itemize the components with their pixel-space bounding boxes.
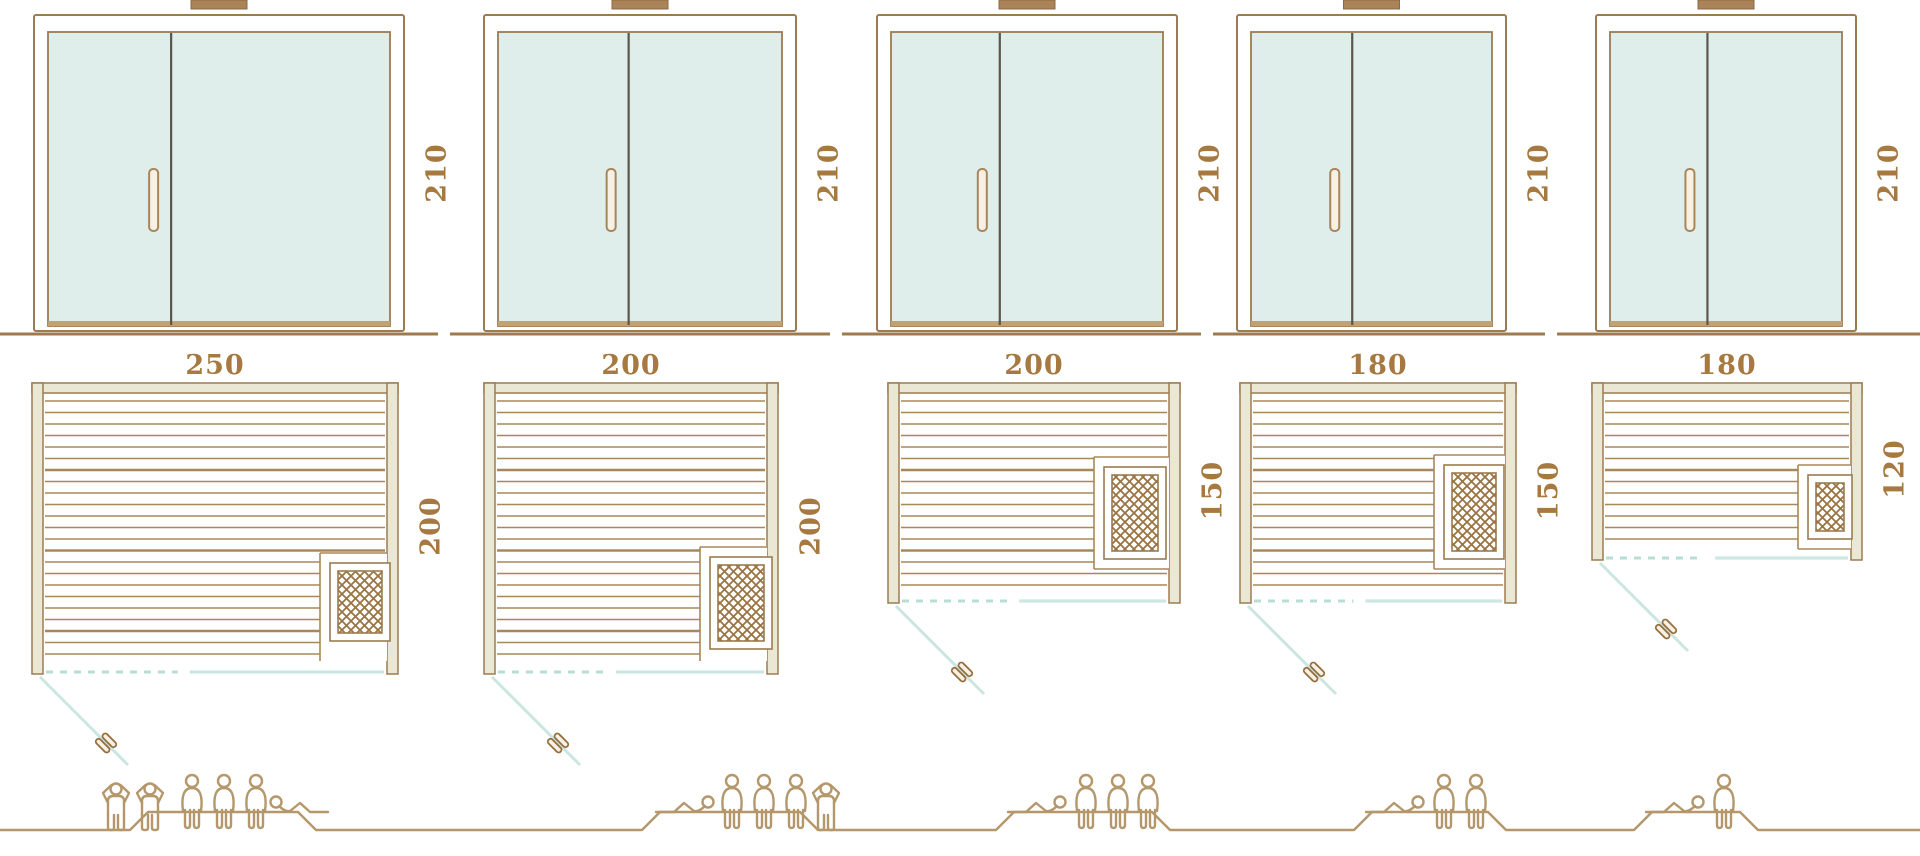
door-elevation: 210 <box>842 0 1226 334</box>
capacity-group <box>1366 775 1486 828</box>
person-lying-glyph <box>271 797 329 813</box>
plan-top-wall <box>484 383 778 393</box>
person-sitting-glyph <box>1434 775 1453 828</box>
person-lying-glyph <box>1366 797 1424 813</box>
person-lying-icon <box>1646 797 1704 813</box>
person-sitting-icon <box>1714 775 1733 828</box>
roof-vent <box>999 0 1055 9</box>
plan-side-wall-left <box>32 383 43 674</box>
plan-side-wall-left <box>484 383 495 674</box>
door-height-label: 210 <box>1524 143 1555 202</box>
door-handle <box>607 169 616 231</box>
person-sitting-icon <box>1466 775 1485 828</box>
door-handle <box>1685 169 1694 231</box>
person-lying-glyph <box>1646 797 1704 813</box>
door-height-label: 210 <box>422 143 453 202</box>
floor-plan: 180150 <box>1240 350 1565 694</box>
heater-crosshatch-icon <box>338 571 382 633</box>
door-height-label: 210 <box>814 143 845 202</box>
plan-width-label: 180 <box>1697 350 1756 381</box>
floor-plan: 180120 <box>1592 350 1911 651</box>
heater <box>1094 457 1169 569</box>
door-elevation: 210 <box>450 0 845 334</box>
plan-top-wall <box>32 383 398 393</box>
plan-side-wall-left <box>888 383 899 603</box>
person-sitting-icon <box>1076 775 1095 828</box>
person-sitting-icon <box>1434 775 1453 828</box>
person-standing-icon <box>137 784 163 831</box>
door-swing-line <box>1248 606 1336 694</box>
door-glass <box>48 32 390 326</box>
floor-plan: 200150 <box>888 350 1229 694</box>
person-sitting-glyph <box>1076 775 1095 828</box>
person-lying-icon <box>271 797 329 813</box>
heater-crosshatch-icon <box>1452 473 1496 551</box>
door-glass <box>1251 32 1492 326</box>
heater <box>320 553 390 661</box>
person-lying-icon <box>1008 797 1066 813</box>
door-elevation: 210 <box>0 0 453 334</box>
heater-crosshatch-icon <box>718 565 764 641</box>
plan-depth-label: 200 <box>416 496 447 555</box>
door-swing-line <box>492 677 580 765</box>
sauna-column: 210180150 <box>1213 0 1565 694</box>
capacity-group <box>656 775 839 830</box>
diagram-canvas: 2102502002102002002102001502101801502101… <box>0 0 1920 856</box>
door-elevation: 210 <box>1557 0 1920 334</box>
door-glass <box>498 32 782 326</box>
person-lying-glyph <box>1008 797 1066 813</box>
door-height-label: 210 <box>1195 143 1226 202</box>
floor-plan: 250200 <box>32 350 447 765</box>
person-sitting-glyph <box>786 775 805 828</box>
plan-side-wall-left <box>1240 383 1251 603</box>
heater-crosshatch-icon <box>1816 483 1844 531</box>
person-sitting-glyph <box>754 775 773 828</box>
door-handle <box>1330 169 1339 231</box>
sauna-column: 210180120 <box>1557 0 1920 651</box>
plan-side-wall-right <box>1505 383 1516 603</box>
plan-width-label: 200 <box>1004 350 1063 381</box>
door-glass <box>891 32 1163 326</box>
person-sitting-glyph <box>722 775 741 828</box>
person-sitting-icon <box>754 775 773 828</box>
person-sitting-glyph <box>182 775 201 828</box>
heater <box>1434 455 1505 569</box>
ground-profile-line <box>0 812 1920 830</box>
capacity-group <box>1646 775 1734 828</box>
person-standing-glyph <box>137 784 163 831</box>
plan-side-wall-right <box>1169 383 1180 603</box>
heater <box>700 547 772 661</box>
plan-depth-label: 200 <box>796 496 827 555</box>
person-sitting-icon <box>1138 775 1157 828</box>
door-handle <box>149 169 158 231</box>
plan-width-label: 180 <box>1348 350 1407 381</box>
plan-depth-label: 120 <box>1880 439 1911 498</box>
plan-top-wall <box>1240 383 1516 393</box>
door-threshold <box>1610 321 1842 326</box>
sauna-column: 210250200 <box>0 0 453 765</box>
person-standing-glyph <box>813 784 839 831</box>
door-threshold <box>891 321 1163 326</box>
person-sitting-icon <box>722 775 741 828</box>
heater <box>1798 465 1852 549</box>
roof-vent <box>1344 0 1400 9</box>
person-sitting-icon <box>1108 775 1127 828</box>
sauna-column: 210200150 <box>842 0 1229 694</box>
person-sitting-glyph <box>1714 775 1733 828</box>
person-standing-glyph <box>103 784 129 831</box>
plan-depth-label: 150 <box>1534 461 1565 520</box>
plan-width-label: 250 <box>185 350 244 381</box>
door-height-label: 210 <box>1874 143 1905 202</box>
person-sitting-glyph <box>246 775 265 828</box>
plan-width-label: 200 <box>601 350 660 381</box>
door-threshold <box>1251 321 1492 326</box>
plan-top-wall <box>888 383 1180 393</box>
door-swing-line <box>1600 563 1688 651</box>
person-lying-glyph <box>656 797 714 813</box>
person-lying-icon <box>1366 797 1424 813</box>
person-sitting-glyph <box>1138 775 1157 828</box>
floor-plan: 200200 <box>484 350 827 765</box>
person-standing-icon <box>813 784 839 831</box>
roof-vent <box>191 0 247 9</box>
person-sitting-icon <box>246 775 265 828</box>
person-sitting-icon <box>786 775 805 828</box>
door-handle <box>978 169 987 231</box>
roof-vent <box>612 0 668 9</box>
person-sitting-glyph <box>1108 775 1127 828</box>
person-standing-icon <box>103 784 129 831</box>
person-sitting-icon <box>182 775 201 828</box>
door-swing-line <box>40 677 128 765</box>
capacity-group <box>1008 775 1158 828</box>
plan-depth-label: 150 <box>1198 461 1229 520</box>
door-swing-line <box>896 606 984 694</box>
door-glass <box>1610 32 1842 326</box>
door-threshold <box>48 321 390 326</box>
person-sitting-glyph <box>214 775 233 828</box>
person-lying-icon <box>656 797 714 813</box>
door-elevation: 210 <box>1213 0 1555 334</box>
person-sitting-glyph <box>1466 775 1485 828</box>
door-threshold <box>498 321 782 326</box>
plan-top-wall <box>1592 383 1862 393</box>
roof-vent <box>1698 0 1754 9</box>
sauna-size-diagram: 2102502002102002002102001502101801502101… <box>0 0 1920 856</box>
heater-crosshatch-icon <box>1112 475 1158 551</box>
sauna-column: 210200200 <box>450 0 845 765</box>
plan-side-wall-left <box>1592 383 1603 560</box>
person-sitting-icon <box>214 775 233 828</box>
